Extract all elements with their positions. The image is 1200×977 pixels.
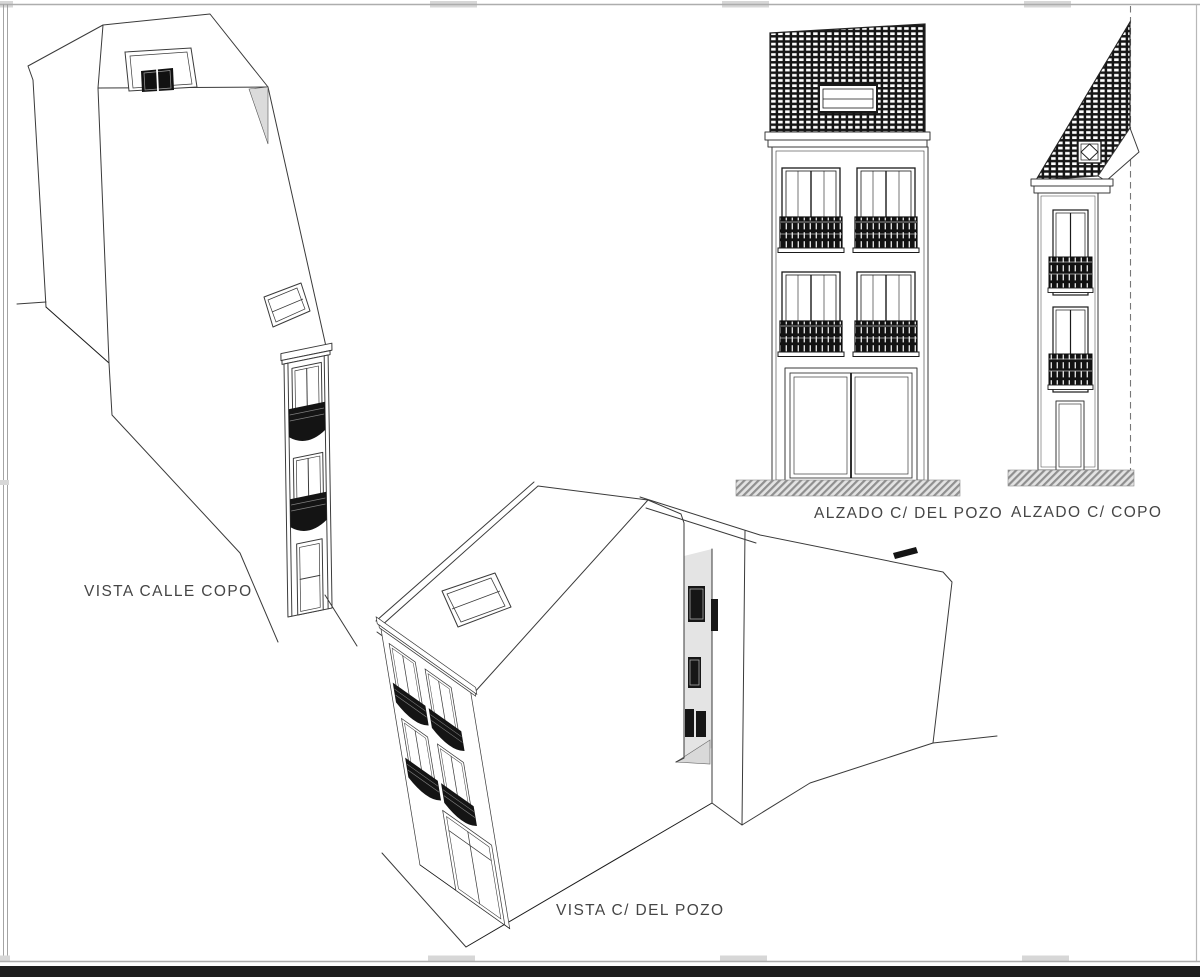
alzado-del-pozo-drawing <box>736 24 960 496</box>
view-label-vista-del-pozo: VISTA C/ DEL POZO <box>556 902 725 920</box>
courtyard-window <box>688 586 705 622</box>
courtyard-window <box>696 711 706 737</box>
view-label-alzado-del-pozo: ALZADO C/ DEL POZO <box>814 505 1003 523</box>
skylight <box>264 283 310 327</box>
roof-vent-window <box>1078 141 1101 163</box>
view-label-vista-calle-copo: VISTA CALLE COPO <box>84 583 253 601</box>
cornice <box>765 132 930 140</box>
entrance-door <box>1056 401 1084 470</box>
view-label-alzado-copo: ALZADO C/ COPO <box>1011 504 1162 522</box>
tiled-roof <box>770 24 925 133</box>
courtyard-window <box>685 709 694 737</box>
ground-hatch <box>1008 470 1134 486</box>
cornice <box>1031 179 1113 186</box>
drawing-sheet: VISTA CALLE COPO ALZADO C/ DEL POZO ALZA… <box>0 0 1200 977</box>
bottom-dark-bar <box>0 966 1200 977</box>
chimney <box>893 547 918 559</box>
architectural-drawing-canvas <box>0 0 1200 977</box>
vista-del-pozo-drawing <box>376 482 997 947</box>
ground-floor-door <box>785 368 917 482</box>
vista-calle-copo-drawing <box>17 14 357 646</box>
narrow-facade <box>281 343 336 617</box>
ground-hatch <box>736 480 960 496</box>
alzado-copo-drawing <box>1008 6 1139 486</box>
